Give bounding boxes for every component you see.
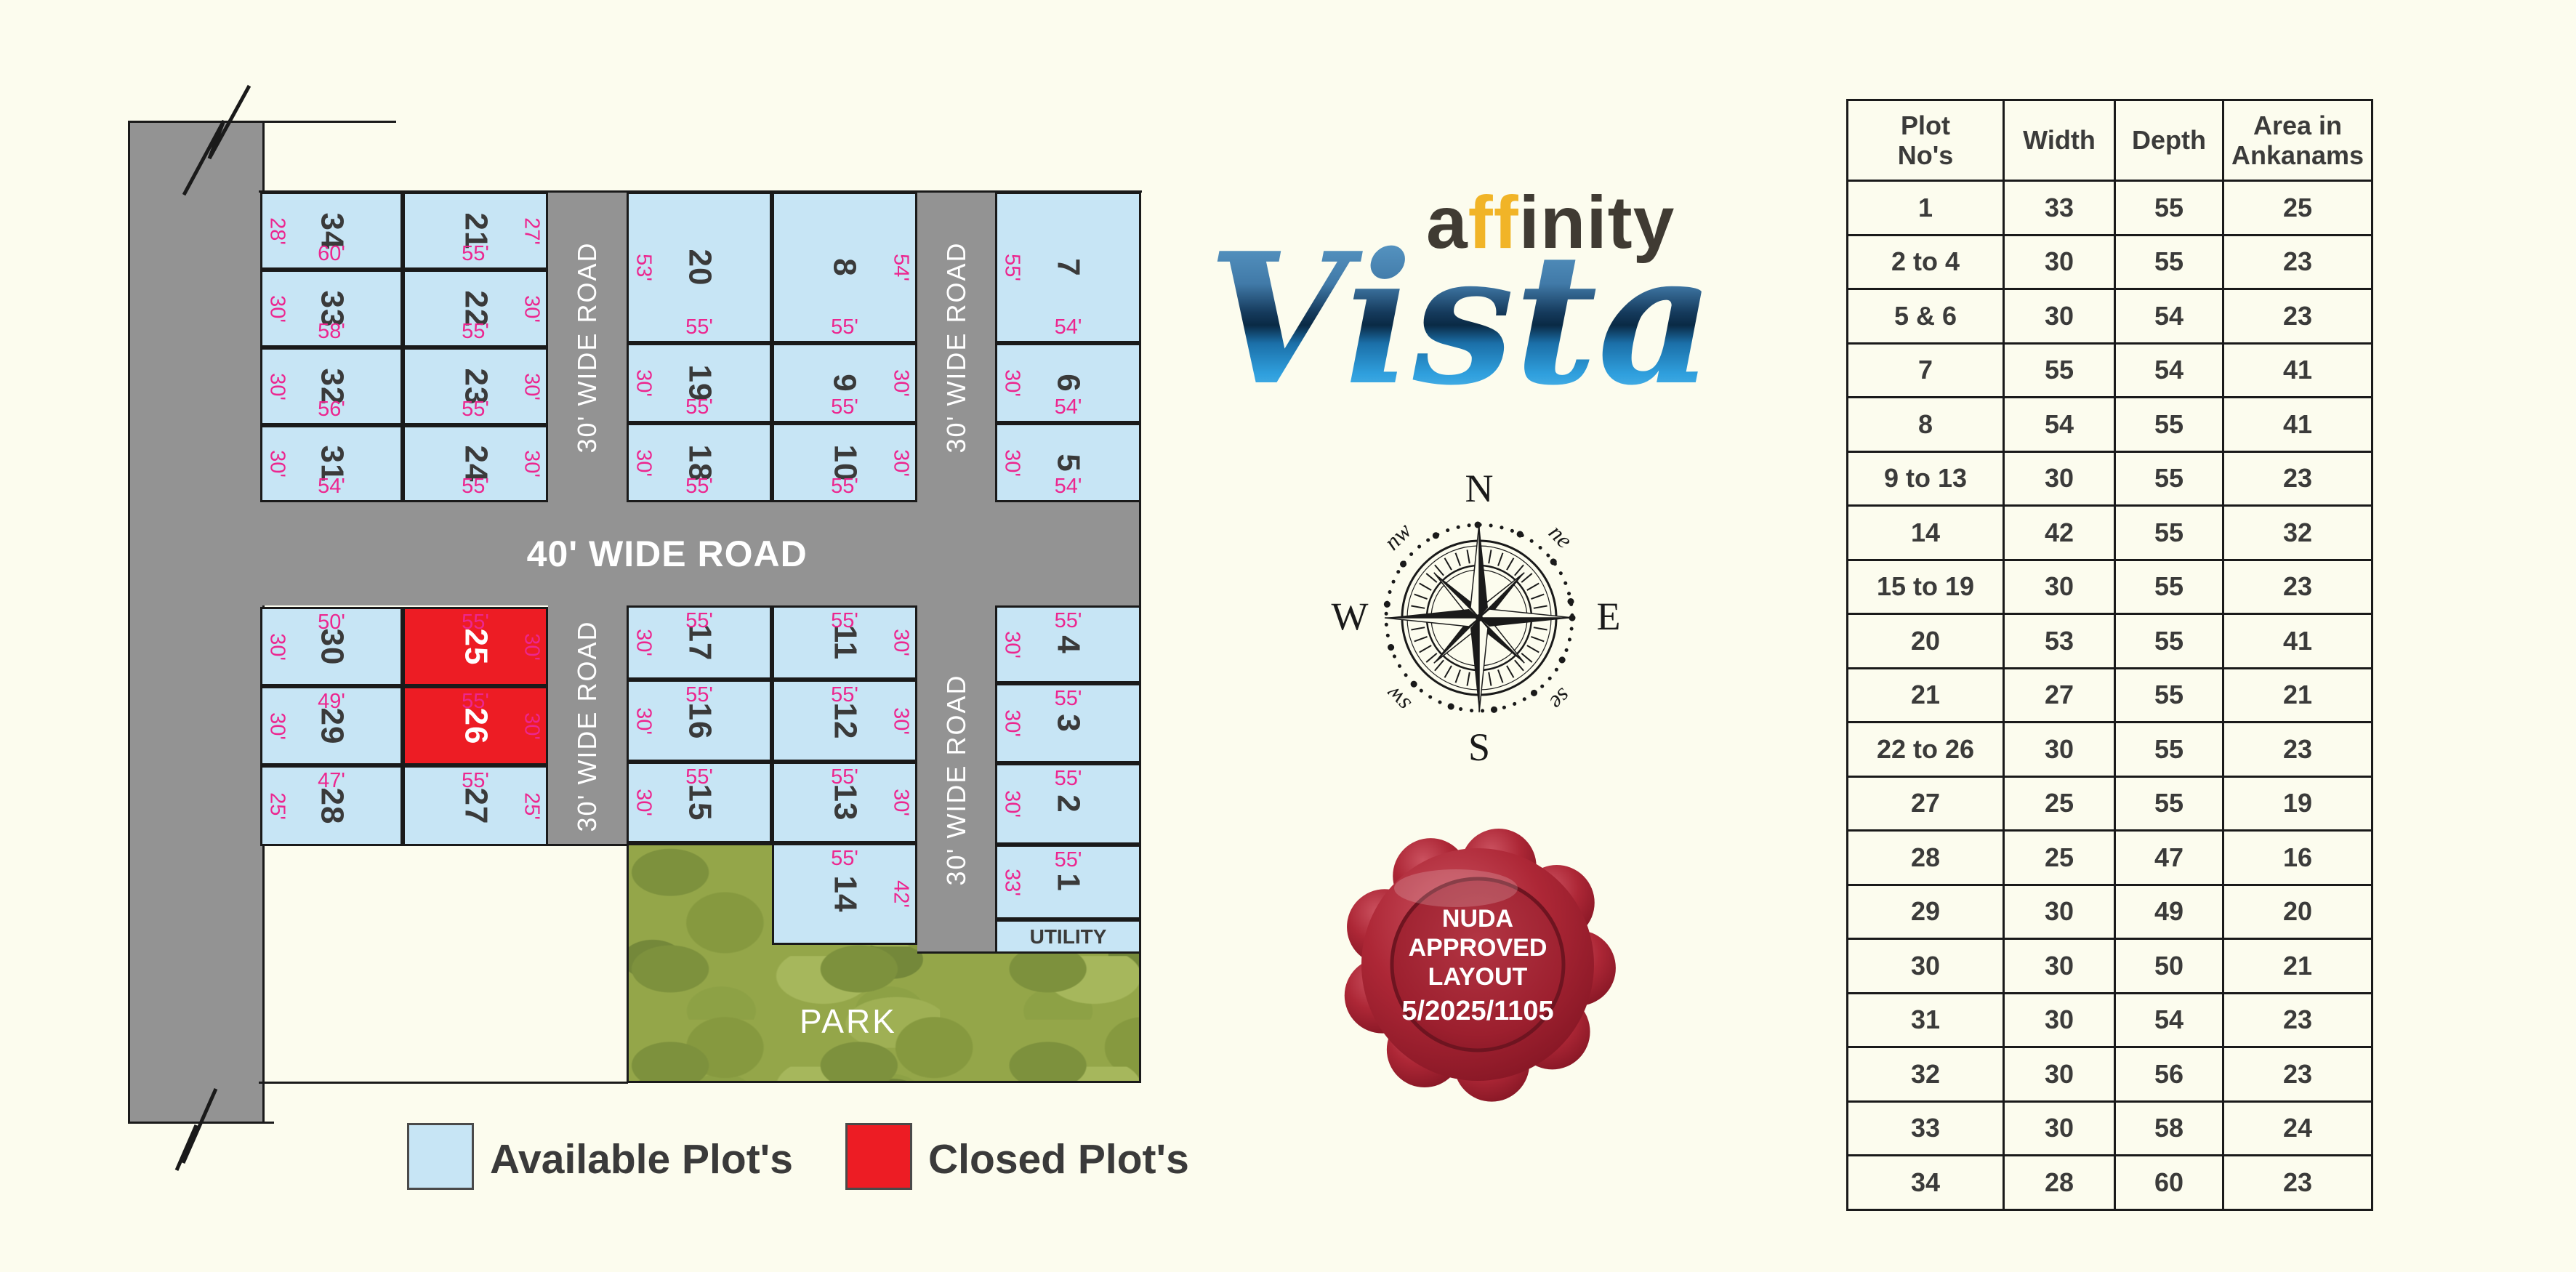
seal-svg: NUDAAPPROVEDLAYOUT5/2025/1105 [1340,826,1616,1103]
compass-rose: NESWneseswnw [1323,462,1635,778]
brand-suffix: inity [1519,181,1675,264]
compass-cardinal-label: N [1465,467,1494,510]
compass-tick [1456,669,1460,683]
compass-tick [1534,627,1547,629]
brand-prefix: a [1426,181,1468,264]
compass-intercardinal-label: ne [1544,519,1578,553]
compass-group: NESWneseswnw [1332,467,1621,769]
compass-tick [1507,558,1514,570]
road-break-marks [0,0,2576,1272]
compass-tick [1498,669,1502,683]
compass-tick [1445,558,1452,570]
compass-tick [1534,606,1547,608]
compass-cardinal-label: W [1332,595,1369,638]
compass-tick [1414,595,1428,599]
compass-tick [1435,565,1444,576]
compass-tick [1527,584,1539,591]
compass-tick [1531,595,1544,599]
compass-tick [1411,627,1425,629]
compass-tick [1498,553,1502,566]
seal-highlight [1394,869,1518,907]
compass-tick [1426,653,1437,662]
compass-tick [1445,666,1452,677]
compass-tick [1420,645,1431,653]
approval-seal: NUDAAPPROVEDLAYOUT5/2025/1105 [1340,826,1616,1106]
brand-accent: ff [1468,181,1519,264]
seal-text-line: 5/2025/1105 [1401,996,1553,1026]
compass-tick [1414,637,1428,641]
compass-tick [1527,645,1539,653]
compass-tick [1531,637,1544,641]
brand-wordmark: affinity [1426,180,1675,265]
compass-tick [1507,666,1514,677]
compass-tick [1489,672,1491,686]
seal-text-line: NUDA [1442,905,1513,933]
compass-intercardinal-label: se [1545,683,1577,715]
compass-cardinal-label: S [1468,725,1490,769]
compass-tick [1468,672,1470,686]
compass-tick [1515,660,1524,671]
compass-tick [1420,584,1431,591]
compass-svg: NESWneseswnw [1323,462,1635,774]
compass-intercardinal-label: nw [1379,517,1417,555]
compass-intercardinal-label: sw [1379,681,1415,717]
break-mark-bottom [177,1089,216,1170]
compass-cardinal-label: E [1597,595,1621,638]
compass-tick [1489,550,1491,563]
compass-tick [1411,606,1425,608]
compass-tick [1468,550,1470,563]
seal-text-line: LAYOUT [1428,963,1528,991]
layout-poster: PARK30' WIDE ROAD30' WIDE ROAD40' WIDE R… [0,0,2576,1272]
compass-center [1476,614,1483,621]
compass-tick [1521,573,1532,582]
park-label: PARK [800,1002,897,1041]
break-mark-top [184,86,249,195]
seal-text-line: APPROVED [1409,934,1547,962]
compass-tick [1456,553,1460,566]
